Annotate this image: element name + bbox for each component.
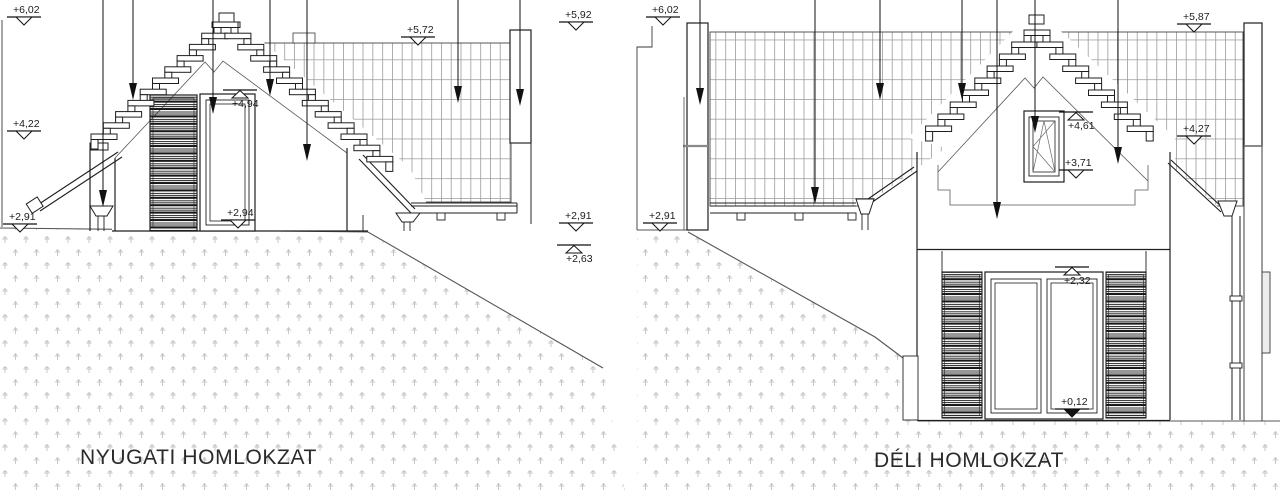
level-marker-value: +0,12 — [1054, 397, 1090, 408]
level-marker-value: +4,61 — [1058, 121, 1095, 132]
level-marker: +2,91 — [558, 211, 594, 232]
level-marker: +5,92 — [558, 10, 594, 31]
level-marker: +2,63 — [556, 244, 593, 265]
level-marker: +5,87 — [1176, 12, 1212, 33]
wall-vent-strip-south — [1262, 272, 1270, 353]
level-marker: +2,91 — [2, 212, 38, 233]
ridge-vent-west — [293, 33, 315, 43]
level-marker: +2,32 — [1054, 266, 1091, 287]
elevation-sheet: +6,02+4,22+2,91+5,72+5,92+4,94+2,94+2,91… — [0, 0, 1280, 492]
west-elevation-drawing — [0, 10, 625, 492]
level-marker-value: +3,71 — [1058, 158, 1094, 169]
level-marker-value: +2,63 — [556, 254, 593, 265]
level-marker-value: +2,32 — [1054, 276, 1091, 287]
gable-peak-cap-west — [219, 13, 234, 22]
level-triangle-down-icon — [558, 21, 594, 31]
level-triangle-down-icon — [558, 222, 594, 232]
elevation-line-drawing — [0, 0, 1280, 492]
level-marker: +6,02 — [6, 5, 42, 26]
gutter-funnel-west — [90, 206, 113, 216]
elevation-title-south: DÉLI HOMLOKZAT — [874, 449, 1064, 473]
dormer-shutter-west — [150, 95, 197, 231]
level-marker-value: +2,91 — [558, 211, 594, 222]
level-marker-value: +6,02 — [645, 5, 681, 16]
level-marker-value: +4,94 — [222, 99, 259, 110]
shutter-right-south — [1106, 272, 1146, 418]
level-triangle-down-icon — [1058, 169, 1094, 179]
level-marker: +0,12 — [1054, 397, 1090, 418]
level-triangle-down-icon — [1054, 408, 1090, 418]
level-marker: +5,72 — [400, 25, 436, 46]
gutter-funnel-right-south — [1218, 201, 1237, 216]
retaining-wall-south — [903, 356, 918, 420]
level-triangle-down-icon — [1176, 23, 1212, 33]
level-triangle-down-icon — [645, 16, 681, 26]
level-marker-value: +5,72 — [400, 25, 436, 36]
level-marker: +4,27 — [1176, 124, 1212, 145]
level-triangle-down-icon — [220, 219, 256, 229]
level-marker-value: +2,94 — [220, 208, 256, 219]
gutter-funnel-mid-south — [856, 199, 874, 214]
level-triangle-down-icon — [6, 130, 42, 140]
level-triangle-down-icon — [6, 16, 42, 26]
south-elevation-drawing — [637, 8, 1280, 492]
elevation-title-west: NYUGATI HOMLOKZAT — [80, 446, 317, 470]
level-marker: +2,94 — [220, 208, 256, 229]
level-marker-value: +5,87 — [1176, 12, 1212, 23]
gutter-south — [710, 203, 856, 220]
level-triangle-down-icon — [2, 223, 38, 233]
shutter-left-south — [942, 272, 982, 418]
reference-arrow — [129, 0, 137, 100]
level-marker-value: +4,27 — [1176, 124, 1212, 135]
gable-peak-cap-south — [1029, 15, 1044, 24]
level-marker: +3,71 — [1058, 158, 1094, 179]
level-marker-value: +4,22 — [6, 119, 42, 130]
level-marker-value: +2,91 — [2, 212, 38, 223]
level-marker: +6,02 — [645, 5, 681, 26]
level-marker-value: +2,91 — [642, 211, 678, 222]
level-triangle-down-icon — [1176, 135, 1212, 145]
level-marker: +4,22 — [6, 119, 42, 140]
reference-arrow — [99, 0, 107, 207]
level-triangle-down-icon — [400, 36, 436, 46]
level-marker-value: +6,02 — [6, 5, 42, 16]
level-marker: +2,91 — [642, 211, 678, 232]
level-marker: +4,94 — [222, 89, 259, 110]
level-marker-value: +5,92 — [558, 10, 594, 21]
lower-roof-fascia-left-west — [26, 152, 122, 231]
level-marker: +4,61 — [1058, 111, 1095, 132]
chimney-left-south — [637, 23, 708, 230]
chimney-right-south — [1244, 23, 1270, 421]
level-triangle-down-icon — [642, 222, 678, 232]
